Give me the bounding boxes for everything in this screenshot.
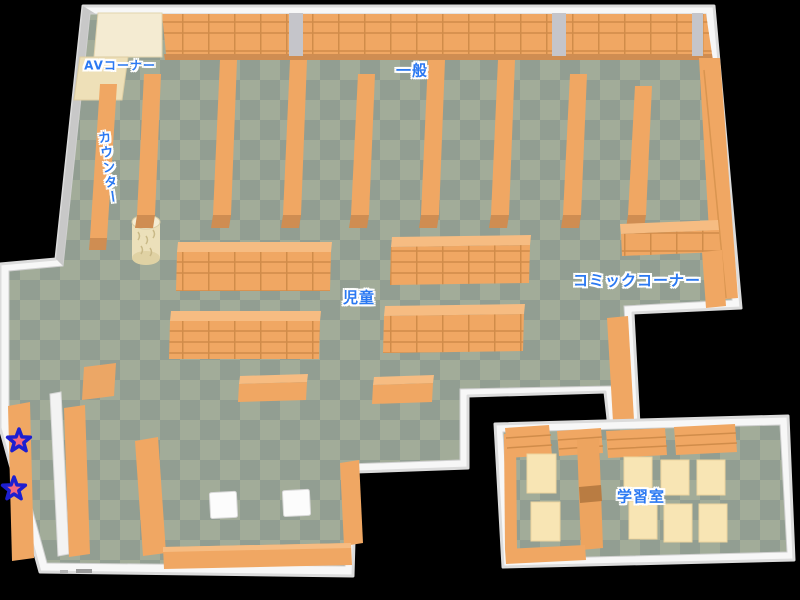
tall-bookshelf [340,460,363,546]
floor-map-canvas [0,0,800,600]
library-map: AVコーナー カウンター 一般 児童 コミックコーナー 学習室 [0,0,800,600]
low-bookshelf [169,311,321,359]
low-bookshelf [390,235,531,285]
low-bookshelf [176,242,332,291]
area-label-comic-corner: コミックコーナー [573,270,701,291]
wall-pillar [289,13,303,56]
low-bookshelf [372,375,434,404]
low-bookshelf [163,543,352,569]
floor-mat [82,363,116,400]
study-desk [527,454,556,493]
room-divider [577,438,603,550]
study-desk [661,460,689,495]
low-bookshelf [620,220,720,256]
low-bookshelf [702,250,726,308]
study-desk [629,501,657,539]
low-bookshelf [383,304,525,353]
study-desk [699,504,727,542]
reading-table [282,489,310,516]
low-bookshelf [606,428,667,458]
low-bookshelf [674,424,737,455]
area-label-children: 児童 [343,287,375,308]
area-label-general: 一般 [396,60,428,81]
wall-bookshelf-band [162,13,713,60]
study-desk [697,460,725,495]
reading-table [209,491,237,518]
study-desk [664,504,692,542]
low-bookshelf [505,425,552,458]
area-label-av-corner: AVコーナー [84,57,156,74]
wall-pillar [692,13,703,56]
study-desk [531,502,560,541]
wall-pillar [552,13,566,56]
low-bookshelf [238,374,308,402]
area-label-study-room: 学習室 [617,486,665,507]
